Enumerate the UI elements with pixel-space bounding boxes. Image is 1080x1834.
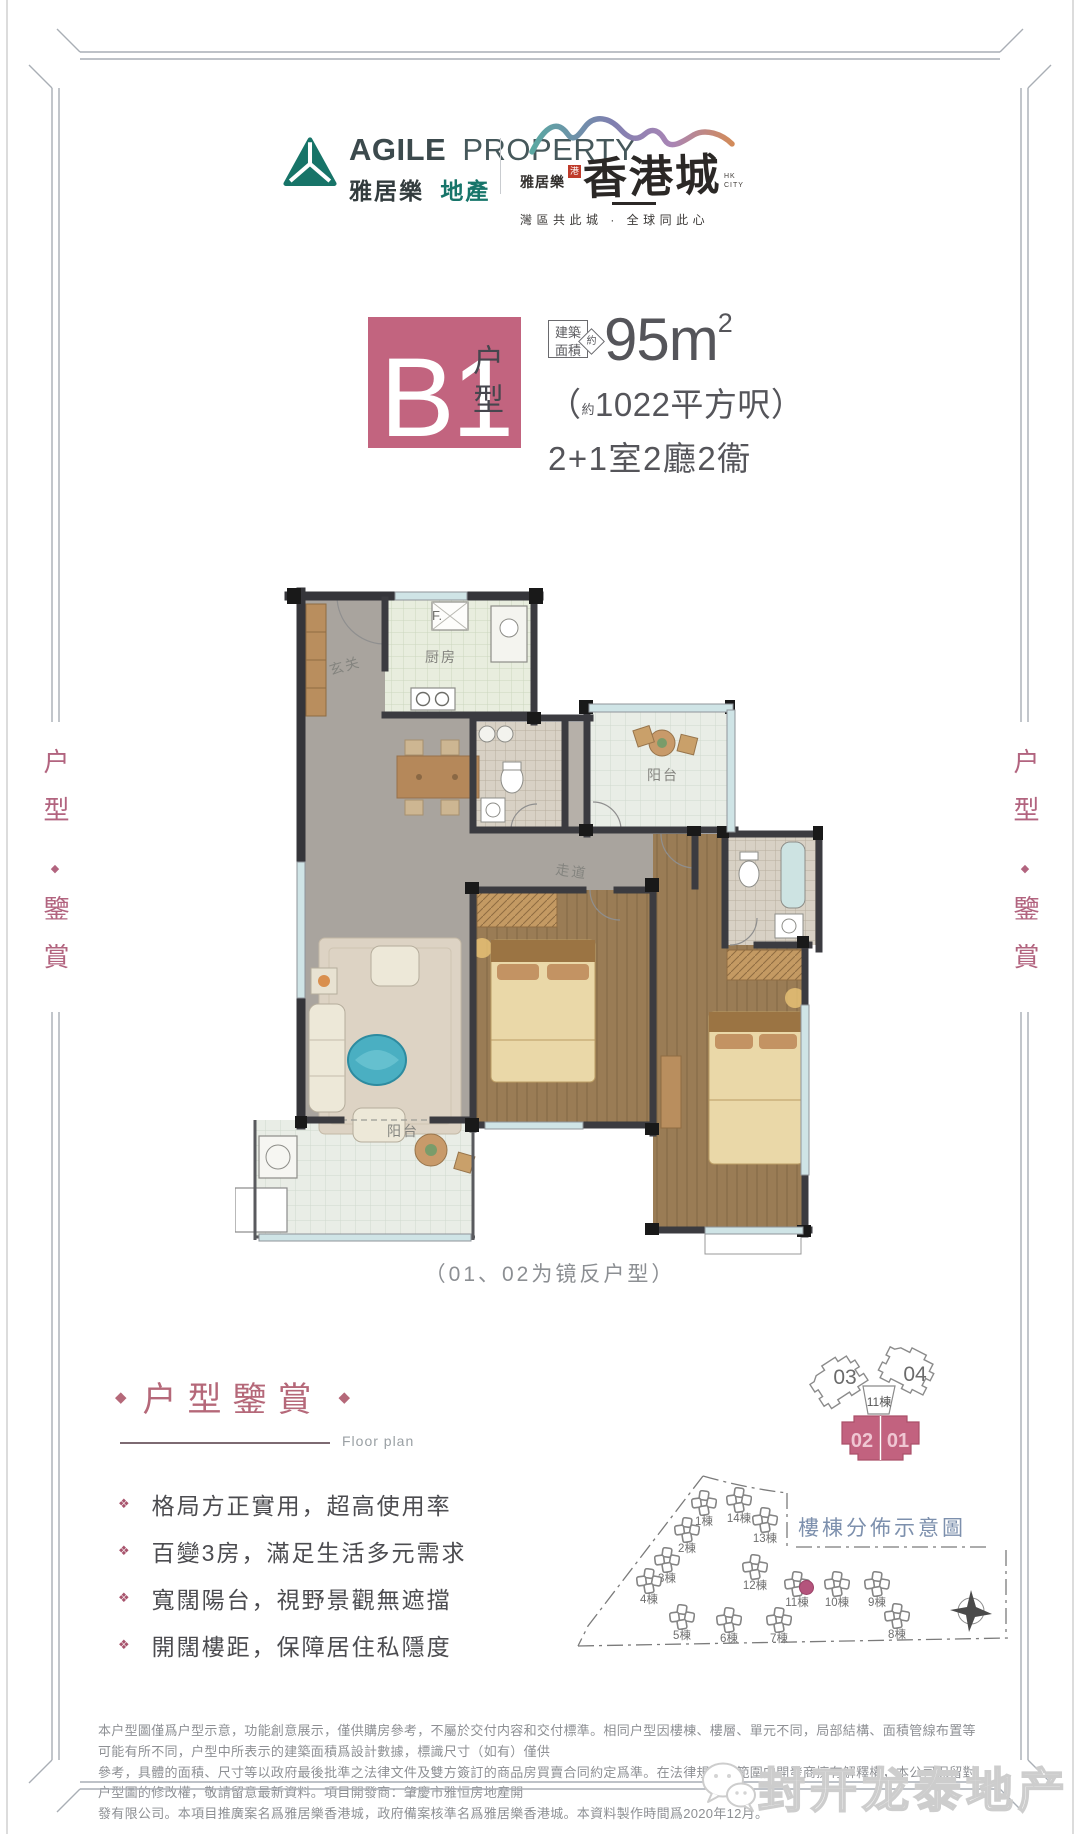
- side-caption-bottom: 鑒賞: [42, 895, 68, 991]
- agency-watermark: 封开龙泰地产: [700, 1752, 1070, 1821]
- area-label-badge: 建築 面積 約: [548, 320, 588, 358]
- logo-divider: [500, 138, 501, 194]
- diamond-bullet-icon: ❖: [118, 1637, 132, 1653]
- highlight-dot: [799, 1580, 814, 1595]
- side-caption-top: 户型: [42, 748, 68, 844]
- side-caption-top: 户型: [1012, 748, 1038, 844]
- diamond-icon: ◆: [1021, 864, 1029, 875]
- appreciation-title: 户型鑒賞: [143, 1372, 323, 1421]
- balcony-top-label: 阳台: [647, 767, 679, 783]
- feature-item: ❖格局方正實用，超高使用率: [118, 1487, 466, 1521]
- diamond-icon: ◆: [339, 1388, 351, 1406]
- feature-item: ❖百變3房，滿足生活多元需求: [118, 1534, 466, 1568]
- agile-cn-bold: 雅居樂: [349, 178, 424, 204]
- side-caption-bottom: 鑒賞: [1012, 895, 1038, 991]
- siteplan-building: 7棟: [765, 1607, 793, 1646]
- feature-item: ❖開闊樓距，保障居住私隱度: [118, 1628, 466, 1662]
- siteplan-building: 13棟: [751, 1507, 779, 1546]
- diamond-icon: ◆: [115, 1388, 127, 1406]
- feature-text: 百變3房，滿足生活多元需求: [152, 1534, 467, 1568]
- siteplan-building: 8棟: [883, 1603, 911, 1642]
- feature-text: 寬闊陽台，視野景觀無遮擋: [152, 1581, 452, 1615]
- agile-en-bold: AGILE: [349, 132, 446, 167]
- hk-sub-en: HK CITY: [724, 173, 746, 190]
- kitchen-label: 厨房: [425, 649, 457, 665]
- diamond-bullet-icon: ❖: [118, 1496, 132, 1512]
- area-value: 95m2: [604, 310, 733, 370]
- tower-unit-04: 04: [903, 1363, 927, 1386]
- siteplan-building: 6棟: [715, 1607, 743, 1646]
- left-edge-line: [6, 0, 8, 1834]
- hk-tagline: 灣區共此城 · 全球同此心: [520, 211, 770, 228]
- diamond-bullet-icon: ❖: [118, 1543, 132, 1559]
- agile-triangle-icon: [283, 134, 337, 192]
- siteplan-buildings: 1棟14棟13棟2棟3棟4棟5棟6棟7棟12棟11棟10棟9棟8棟: [540, 1450, 1020, 1680]
- siteplan-building: 12棟: [741, 1554, 769, 1593]
- hk-prefix: 雅居樂: [520, 172, 565, 200]
- tower-building-label: 11棟: [867, 1394, 891, 1409]
- fridge-label: F.: [432, 608, 442, 623]
- feature-item: ❖寬闊陽台，視野景觀無遮擋: [118, 1581, 466, 1615]
- room-config: 2+1室2廳2衞: [548, 432, 804, 480]
- siteplan-diagram: 樓棟分佈示意圖 1棟14棟13棟2棟3棟4棟5棟6棟7棟12棟11棟10棟9棟8…: [540, 1450, 1020, 1680]
- tower-unit-02: 02: [851, 1430, 873, 1452]
- unit-specs: 建築 面積 約 95m2 （約1022平方呎） 2+1室2廳2衞: [548, 310, 804, 480]
- siteplan-building: 5棟: [668, 1604, 696, 1643]
- hk-name-calligraphy: 香港城: [582, 154, 721, 203]
- diamond-bullet-icon: ❖: [118, 1590, 132, 1606]
- hkcity-logo: 雅居樂 港 香港城 HK CITY 灣區共此城 · 全球同此心: [520, 112, 770, 228]
- right-edge-line: [1072, 0, 1074, 1834]
- floorplan-drawing: F. 厨房 玄关 阳台 走道 阳台: [235, 500, 825, 1265]
- wechat-icon: [700, 1760, 758, 1814]
- area-superscript: 2: [718, 308, 733, 338]
- unit-type-label: 户型: [470, 344, 501, 422]
- feature-list: ❖格局方正實用，超高使用率 ❖百變3房，滿足生活多元需求 ❖寬闊陽台，視野景觀無…: [118, 1487, 466, 1675]
- feature-text: 格局方正實用，超高使用率: [152, 1487, 452, 1521]
- poster-page: 户型 ◆ 鑒賞 户型 ◆ 鑒賞 AGILE PROPERTY 雅居樂 地產: [0, 0, 1080, 1834]
- tower-unit-01: 01: [887, 1430, 909, 1452]
- side-caption-left: 户型 ◆ 鑒賞: [36, 728, 74, 1010]
- diamond-icon: ◆: [51, 864, 59, 875]
- siteplan-building: 4棟: [635, 1568, 663, 1607]
- feature-text: 開闊樓距，保障居住私隱度: [152, 1628, 452, 1662]
- balcony-bottom-label: 阳台: [387, 1123, 419, 1139]
- red-seal-icon: 港: [568, 165, 581, 178]
- siteplan-building: 11棟: [783, 1571, 811, 1610]
- floorplan-caption: （01、02为镜反户型）: [390, 1258, 710, 1288]
- siteplan-building: 14棟: [725, 1487, 753, 1526]
- siteplan-building: 10棟: [823, 1571, 851, 1610]
- watermark-text: 封开龙泰地产: [758, 1752, 1070, 1821]
- appreciation-underline: [120, 1442, 330, 1444]
- appreciation-header: ◆ 户型鑒賞 ◆: [115, 1372, 350, 1421]
- area-sqft: （約1022平方呎）: [548, 378, 804, 426]
- side-caption-right: 户型 ◆ 鑒賞: [1006, 728, 1044, 1010]
- appreciation-subtitle: Floor plan: [342, 1433, 414, 1449]
- agile-cn-teal: 地產: [440, 178, 490, 204]
- tower-unit-03: 03: [833, 1366, 856, 1389]
